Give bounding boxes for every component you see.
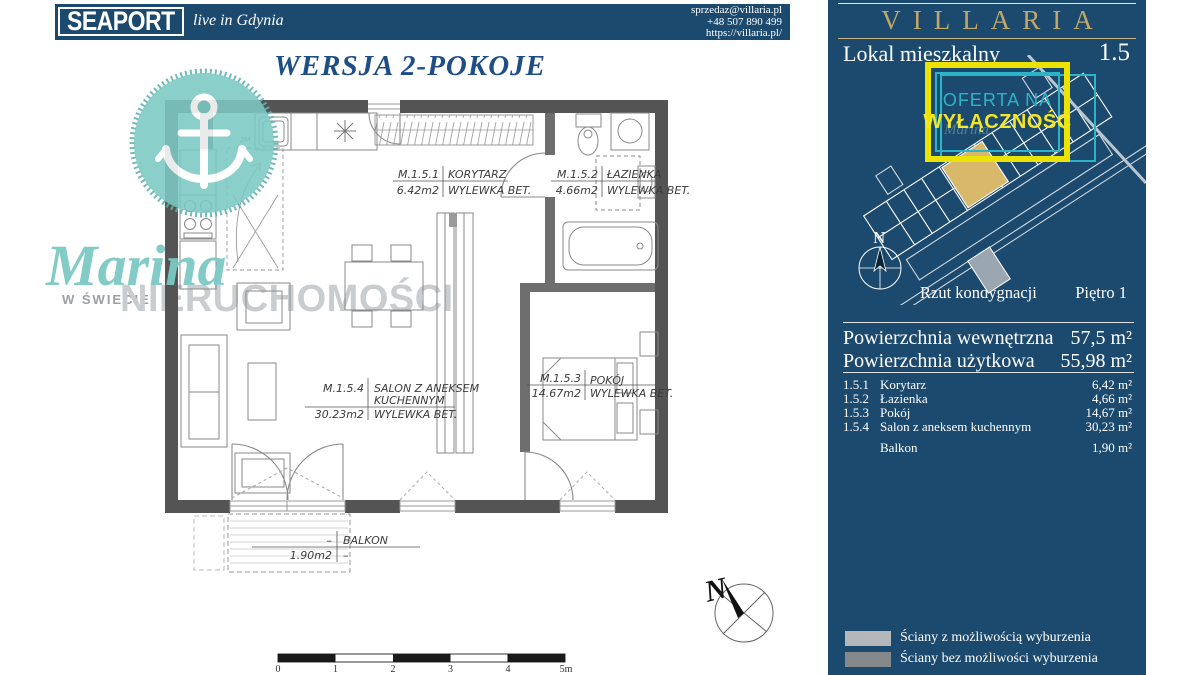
tv-cabinet — [237, 283, 290, 330]
label-lazienka: M.1.5.2 ŁAZIENKA 4.66m2 WYLEWKA BET. — [551, 166, 690, 197]
svg-text:1.90m2: 1.90m2 — [290, 549, 332, 562]
label-korytarz: M.1.5.1 KORYTARZ 6.42m2 WYLEWKA BET. — [393, 166, 531, 197]
svg-text:ŁAZIENKA: ŁAZIENKA — [606, 168, 661, 181]
legend-row-demolishable: Ściany z możliwością wyburzenia — [845, 630, 1136, 646]
svg-text:WYLEWKA BET.: WYLEWKA BET. — [590, 387, 673, 400]
sidebar: VILLARIA Lokal mieszkalny 1.5 N — [828, 0, 1146, 675]
legend-row-structural: Ściany bez możliwości wyburzenia — [845, 651, 1136, 667]
coffee-table — [248, 363, 276, 420]
svg-text:M.1.5.4: M.1.5.4 — [323, 382, 364, 395]
bedroom-door — [525, 452, 573, 500]
window-tilt-marks — [400, 472, 615, 500]
svg-text:4.66m2: 4.66m2 — [556, 184, 598, 197]
room-name: Salon z aneksem kuchennym — [880, 419, 1031, 435]
svg-text:M.1.5.1: M.1.5.1 — [398, 168, 439, 181]
svg-text:–: – — [327, 534, 333, 547]
villaria-logo: VILLARIA — [828, 5, 1146, 36]
svg-text:BALKON: BALKON — [343, 534, 388, 547]
bathtub-icon — [563, 222, 658, 270]
marina-anchor-logo — [128, 67, 280, 219]
scale-bar: 0 1 2 3 4 5m — [276, 654, 573, 675]
room-area: 1,90 m² — [1092, 440, 1132, 456]
svg-text:3: 3 — [448, 664, 453, 675]
area-usable-row: Powierzchnia użytkowa 55,98 m² — [843, 350, 1132, 373]
area-usable-label: Powierzchnia użytkowa — [843, 350, 1035, 372]
label-salon: M.1.5.4 SALON Z ANEKSEM KUCHENNYM 30.23m… — [305, 378, 480, 421]
sofa — [181, 335, 227, 447]
hob-icon — [334, 120, 356, 142]
legend-swatch-light — [845, 631, 891, 646]
divider — [843, 322, 1134, 323]
svg-text:WYLEWKA BET.: WYLEWKA BET. — [448, 184, 531, 197]
svg-text:1: 1 — [333, 664, 338, 675]
room-name: Balkon — [880, 440, 918, 456]
marina-watermark-script: Marina — [46, 232, 227, 299]
interior-walls — [520, 113, 655, 452]
svg-text:5m: 5m — [560, 664, 573, 675]
area-internal-value: 57,5 m² — [1070, 327, 1132, 350]
area-internal-row: Powierzchnia wewnętrzna 57,5 m² — [843, 327, 1132, 350]
svg-text:4: 4 — [506, 664, 511, 675]
svg-text:–: – — [343, 549, 349, 562]
svg-text:POKÓJ: POKÓJ — [590, 374, 624, 387]
area-usable-value: 55,98 m² — [1060, 350, 1132, 373]
washing-machine-icon — [611, 113, 649, 150]
badge-line1: OFERTA NA — [943, 90, 1052, 111]
compass: N — [700, 571, 773, 642]
room-no: 1.5.4 — [843, 419, 869, 435]
badge-watermark: Marina — [944, 122, 989, 139]
divider — [843, 372, 1134, 373]
legend-label: Ściany z możliwością wyburzenia — [900, 630, 1091, 646]
label-balkon: – BALKON 1.90m2 – — [252, 531, 420, 562]
siteplan-compass-n: N — [873, 228, 885, 247]
svg-text:6.42m2: 6.42m2 — [397, 184, 439, 197]
legend-swatch-dark — [845, 652, 891, 667]
wardrobe-hatched — [375, 115, 533, 145]
toilet-icon — [576, 114, 601, 155]
page-title: WERSJA 2-POKOJE — [250, 50, 570, 83]
balcony-doors — [232, 444, 343, 500]
legend-label: Ściany bez możliwości wyburzenia — [900, 651, 1098, 667]
svg-text:KUCHENNYM: KUCHENNYM — [374, 394, 445, 407]
room-area: 30,23 m² — [1085, 419, 1132, 435]
svg-text:0: 0 — [276, 664, 281, 675]
svg-text:KORYTARZ: KORYTARZ — [448, 168, 507, 181]
svg-text:14.67m2: 14.67m2 — [532, 387, 581, 400]
area-internal-label: Powierzchnia wewnętrzna — [843, 327, 1053, 349]
siteplan-compass: N — [859, 228, 901, 289]
label-pokoj: M.1.5.3 POKÓJ 14.67m2 WYLEWKA BET. — [527, 370, 673, 400]
svg-text:M.1.5.2: M.1.5.2 — [557, 168, 598, 181]
sidebar-brand-rule — [838, 38, 1136, 39]
exclusive-offer-badge: OFERTA NA WYŁĄCZNOŚĆ — [925, 62, 1070, 162]
floor-plan: 2M — [0, 0, 835, 675]
svg-text:WYLEWKA BET.: WYLEWKA BET. — [374, 408, 457, 421]
badge-inner-frame: OFERTA NA WYŁĄCZNOŚĆ — [935, 72, 1060, 152]
svg-text:M.1.5.3: M.1.5.3 — [540, 372, 581, 385]
bathroom-dashed-zone — [596, 156, 640, 210]
svg-text:2: 2 — [391, 664, 396, 675]
siteplan-stairs — [968, 247, 1011, 293]
svg-text:30.23m2: 30.23m2 — [315, 408, 364, 421]
dining-table — [345, 245, 423, 327]
compass-n: N — [700, 571, 731, 609]
sidebar-top-rule — [838, 3, 1136, 4]
svg-text:WYLEWKA BET.: WYLEWKA BET. — [607, 184, 690, 197]
